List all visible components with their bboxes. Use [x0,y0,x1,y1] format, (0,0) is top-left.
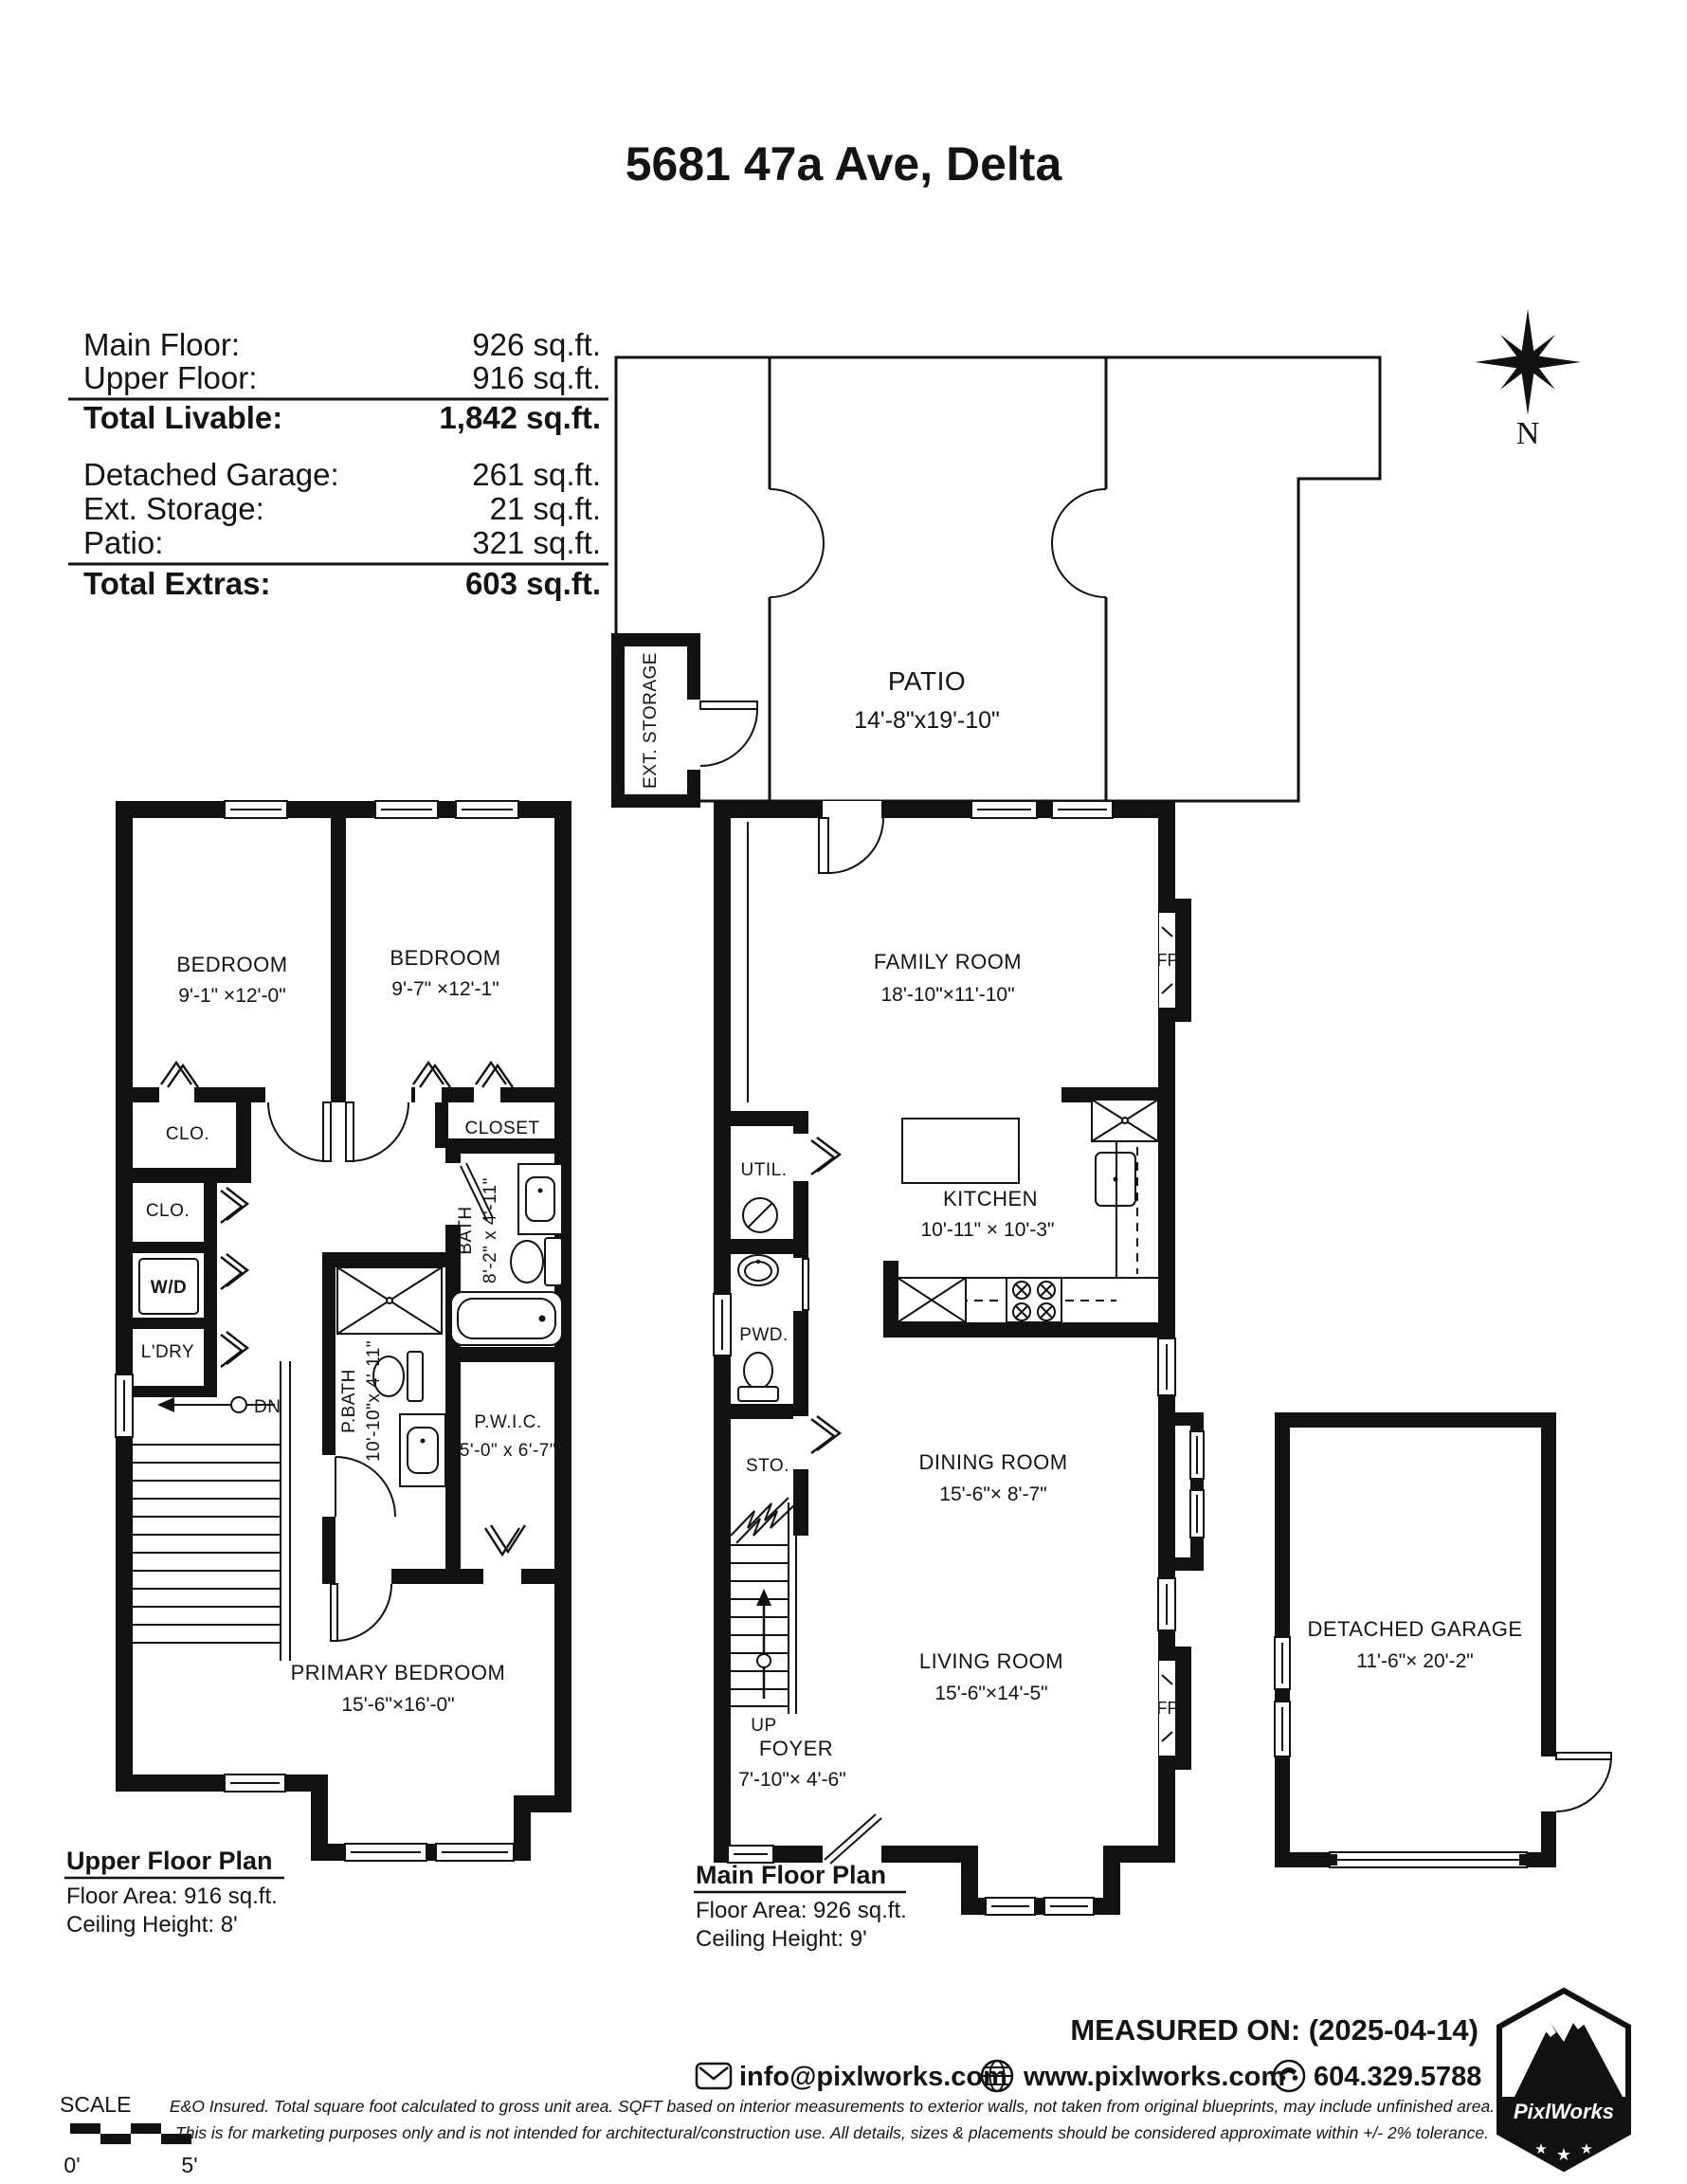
floor-plan-page: 5681 47a Ave, Delta Main Floor: 926 sq.f… [0,0,1687,2184]
room-label-foyer: FOYER [759,1737,833,1760]
area-total-label: Total Extras: [83,566,270,601]
room-label-garage: DETACHED GARAGE [1307,1617,1522,1641]
room-dims-garage: 11'-6"× 20'-2" [1356,1650,1474,1672]
window [971,801,1037,818]
washer-dryer-icon: W/D [139,1259,198,1314]
clo-door-chevron [161,1063,198,1087]
room-label-kitchen: KITCHEN [943,1187,1038,1210]
patio-door-leaf [819,818,828,873]
closet-door-chevron [476,1063,513,1087]
window [1158,1338,1175,1395]
ext-storage-room: EXT. STORAGE [611,633,757,808]
up-arrow [756,1589,771,1606]
area-total-label: Total Livable: [83,400,282,435]
footer: MEASURED ON: (2025-04-14) info@pixlworks… [60,1991,1628,2177]
logo-star-icon: ★ [1534,2141,1547,2157]
water-heater-icon [743,1198,777,1232]
main-stairs: UP [731,1498,796,1736]
window [456,801,518,818]
room-label-clo1: CLO. [166,1124,209,1144]
email-text[interactable]: info@pixlworks.com [739,2062,1007,2092]
window [345,1844,426,1861]
patio-door-opening [823,801,881,818]
room-label-bedroom2: BEDROOM [390,946,500,970]
room-label-family: FAMILY ROOM [874,950,1022,974]
clo2-door-chevron [221,1188,247,1223]
website-text[interactable]: www.pixlworks.com [1023,2062,1285,2092]
area-row-label: Patio: [83,525,163,560]
area-summary-table: Main Floor: 926 sq.ft. Upper Floor: 916 … [68,327,608,601]
window [714,1294,731,1356]
stove-icon [1007,1278,1061,1322]
window [225,1774,285,1792]
shower-icon [337,1267,442,1334]
room-label-living: LIVING ROOM [919,1649,1063,1673]
pwd-toilet-icon [738,1353,778,1401]
room-dims-foyer: 7'-10"× 4'-6" [738,1769,845,1791]
wd-door-chevron [221,1254,247,1289]
measured-on-label: MEASURED ON: (2025-04-14) [1070,2013,1478,2047]
fireplace-family: FP [1156,899,1191,1022]
page-title: 5681 47a Ave, Delta [626,137,1063,191]
kitchen-island [902,1119,1019,1183]
room-label-sto: STO. [746,1456,789,1476]
bathtub-icon [451,1292,562,1345]
room-label-util: UTIL. [741,1160,788,1180]
main-plan-area: Floor Area: 926 sq.ft. [696,1898,907,1923]
scale-end-label: 5' [181,2153,197,2177]
window [116,1374,133,1437]
sto-door-chevron [811,1416,840,1453]
pwic-door-chevron [485,1525,525,1555]
email-icon [697,2064,731,2088]
room-label-primary: PRIMARY BEDROOM [291,1661,506,1684]
room-label-dining: DINING ROOM [918,1450,1067,1474]
area-row-value: 321 sq.ft. [472,525,601,560]
scale-label: SCALE [60,2092,131,2117]
prep-sink [898,1278,966,1322]
patio-area: PATIO 14'-8"x19'-10" EXT. STORAGE [611,357,1380,808]
area-row-label: Ext. Storage: [83,491,264,526]
pwd-sink-icon [738,1255,778,1285]
compass-north-label: N [1516,416,1540,451]
window [1158,1578,1175,1630]
room-dims-dining: 15'-6"× 8'-7" [939,1483,1046,1505]
main-floor-plan: FP FP [714,801,1204,1915]
window [1044,1898,1094,1915]
closet-door-chevron [413,1063,450,1087]
fireplace-label: FP [1156,951,1178,970]
logo-text: PixlWorks [1514,2100,1614,2123]
room-label-bedroom1: BEDROOM [176,953,287,976]
room-label-clo2: CLO. [146,1201,190,1221]
bath-toilet-icon [511,1238,562,1285]
area-row-label: Main Floor: [83,327,240,362]
window [436,1844,514,1861]
room-dims-kitchen: 10'-11" × 10'-3" [920,1219,1054,1241]
room-label-patio: PATIO [888,666,966,696]
area-total-value: 1,842 sq.ft. [439,400,601,435]
laundry-door-chevron [221,1332,247,1367]
disclaimer-line-2: This is for marketing purposes only and … [175,2123,1489,2142]
area-row-value: 926 sq.ft. [472,327,601,362]
kitchen-sink [1092,1100,1158,1141]
room-dims-pbath: 10'-10"x 4'-11" [364,1340,384,1462]
bath-vanity-icon [518,1164,562,1234]
main-plan-title: Main Floor Plan [696,1861,886,1889]
pwd-door-leaf [803,1259,808,1310]
room-dims-family: 18'-10"×11'-10" [880,984,1014,1006]
area-row-label: Detached Garage: [83,457,339,492]
window [986,1898,1035,1915]
room-label-pwic: P.W.I.C. [474,1412,541,1432]
upper-plan-caption: Upper Floor Plan Floor Area: 916 sq.ft. … [64,1847,284,1938]
garage-side-door-opening [1541,1756,1556,1811]
window [225,801,287,818]
bedroom1-door-leaf [323,1102,331,1161]
primary-door-leaf [331,1584,337,1641]
stairs-dn-marker: DN [157,1397,281,1417]
room-label-laundry: L'DRY [141,1342,194,1362]
garage-side-door-leaf [1556,1753,1611,1759]
phone-text[interactable]: 604.329.5788 [1314,2062,1481,2092]
room-label-ext-storage: EXT. STORAGE [641,652,661,789]
room-label-pbath: P.BATH [339,1369,359,1433]
fireplace-living: FP [1156,1647,1191,1770]
logo-star-icon: ★ [1556,2145,1571,2164]
upper-plan-title: Upper Floor Plan [66,1847,273,1875]
window [1275,1702,1290,1756]
room-dims-bedroom2: 9'-7" ×12'-1" [391,978,499,1000]
garage-plan: DETACHED GARAGE 11'-6"× 20'-2" [1275,1412,1611,1867]
upper-floor-plan: W/D DN BEDROOM [116,801,571,1861]
room-label-pwd: PWD. [739,1325,789,1345]
window [1275,1637,1290,1689]
pbath-door-opening [322,1455,336,1517]
room-label-closet: CLOSET [464,1119,539,1138]
upper-plan-area: Floor Area: 916 sq.ft. [66,1884,278,1909]
window [1190,1490,1204,1538]
room-dims-bedroom1: 9'-1" ×12'-0" [178,985,285,1007]
fireplace-label: FP [1156,1699,1178,1718]
area-row-value: 261 sq.ft. [472,457,601,492]
wd-label: W/D [151,1278,187,1298]
garage-door [1330,1852,1527,1867]
logo-star-icon: ★ [1580,2141,1592,2157]
window [375,801,438,818]
pbath-vanity-icon [400,1414,445,1486]
room-dims-patio: 14'-8"x19'-10" [854,707,1000,734]
area-row-value: 21 sq.ft. [490,491,601,526]
room-dims-primary: 15'-6"×16'-0" [341,1694,454,1716]
area-row-label: Upper Floor: [83,360,257,395]
room-dims-bath: 8'-2" x 4'-11" [481,1177,500,1283]
stairs-dn-label: DN [254,1397,281,1417]
pixlworks-logo: PixlWorks ★ ★ ★ [1499,1991,1628,2171]
disclaimer-line-1: E&O Insured. Total square foot calculate… [170,2097,1495,2116]
room-dims-pwic: 5'-0" x 6'-7" [460,1441,556,1461]
area-row-value: 916 sq.ft. [472,360,601,395]
scale-start-label: 0' [63,2153,80,2177]
bedroom2-door-leaf [346,1102,354,1161]
window [1052,801,1113,818]
upper-plan-ceiling: Ceiling Height: 8' [66,1912,238,1938]
stairs-up-label: UP [751,1716,776,1736]
util-door-chevron [811,1137,840,1174]
floor-plan-canvas: 5681 47a Ave, Delta Main Floor: 926 sq.f… [0,0,1687,2184]
window [1190,1431,1204,1479]
room-dims-living: 15'-6"×14'-5" [934,1683,1047,1704]
main-plan-ceiling: Ceiling Height: 9' [696,1926,867,1952]
area-total-value: 603 sq.ft. [465,566,601,601]
main-plan-caption: Main Floor Plan Floor Area: 926 sq.ft. C… [694,1861,907,1952]
room-label-bath: BATH [456,1206,476,1254]
compass-rose-icon: N [1475,309,1581,451]
